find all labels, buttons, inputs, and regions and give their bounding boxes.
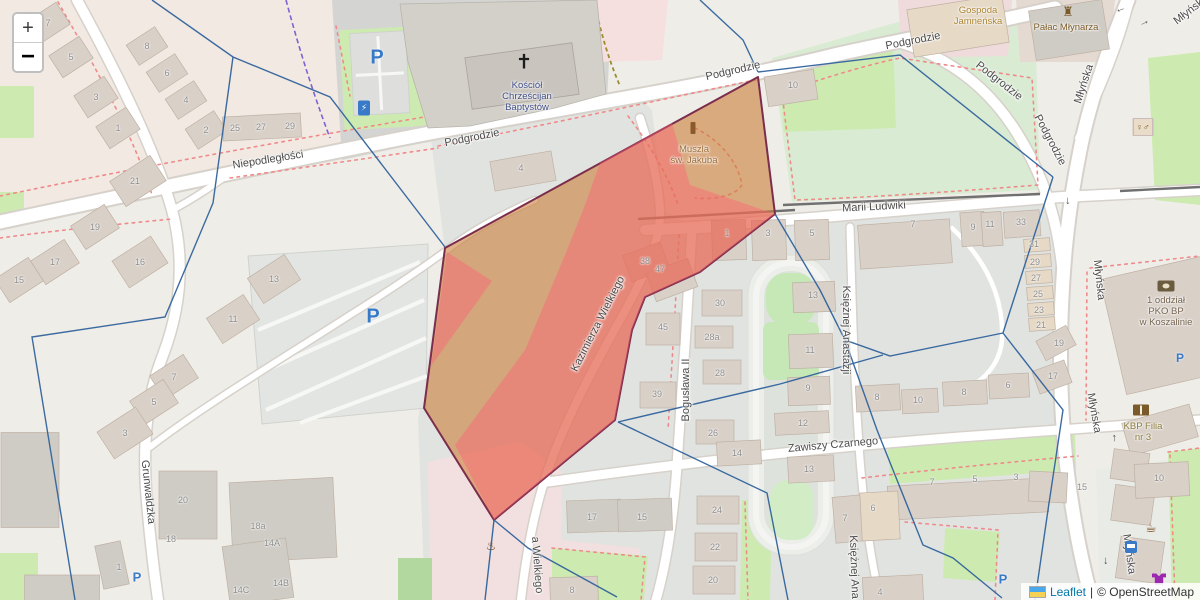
building	[1025, 254, 1052, 269]
building	[788, 333, 833, 369]
building	[1134, 462, 1190, 499]
building	[646, 313, 680, 345]
building	[617, 498, 672, 532]
building	[1026, 270, 1053, 285]
building	[787, 455, 834, 483]
building	[1027, 286, 1054, 301]
ukraine-flag-icon	[1029, 586, 1046, 598]
building	[550, 576, 599, 600]
attribution-separator: |	[1090, 585, 1093, 599]
building	[1115, 536, 1164, 584]
building	[1028, 471, 1068, 503]
map-tiles	[0, 0, 1200, 600]
building	[858, 219, 953, 269]
building	[25, 575, 100, 600]
building	[696, 420, 734, 444]
zoom-control: + −	[12, 12, 44, 73]
building	[159, 471, 217, 539]
building	[695, 533, 737, 561]
leaflet-link[interactable]: Leaflet	[1050, 585, 1086, 599]
building	[1029, 317, 1056, 332]
building	[222, 538, 294, 600]
building	[693, 566, 735, 594]
building	[901, 388, 938, 414]
building	[703, 360, 741, 384]
zoom-in-button[interactable]: +	[14, 14, 42, 43]
building	[566, 499, 621, 533]
building	[862, 574, 923, 600]
building	[716, 440, 761, 466]
building	[774, 411, 829, 436]
building	[988, 373, 1029, 399]
zoom-out-button[interactable]: −	[14, 43, 42, 71]
building	[697, 496, 739, 524]
building	[981, 211, 1003, 246]
building	[695, 326, 733, 348]
building	[1028, 302, 1055, 317]
building	[702, 290, 742, 316]
building	[222, 113, 301, 141]
building	[942, 380, 987, 406]
attribution-bar: Leaflet | © OpenStreetMap	[1021, 583, 1200, 600]
building	[1024, 238, 1051, 253]
building	[640, 382, 676, 408]
building	[1133, 119, 1153, 136]
openstreetmap-link[interactable]: © OpenStreetMap	[1097, 585, 1194, 599]
building	[860, 491, 900, 541]
map-canvas[interactable]: NiepodległościPodgrodziePodgrodziePodgro…	[0, 0, 1200, 600]
